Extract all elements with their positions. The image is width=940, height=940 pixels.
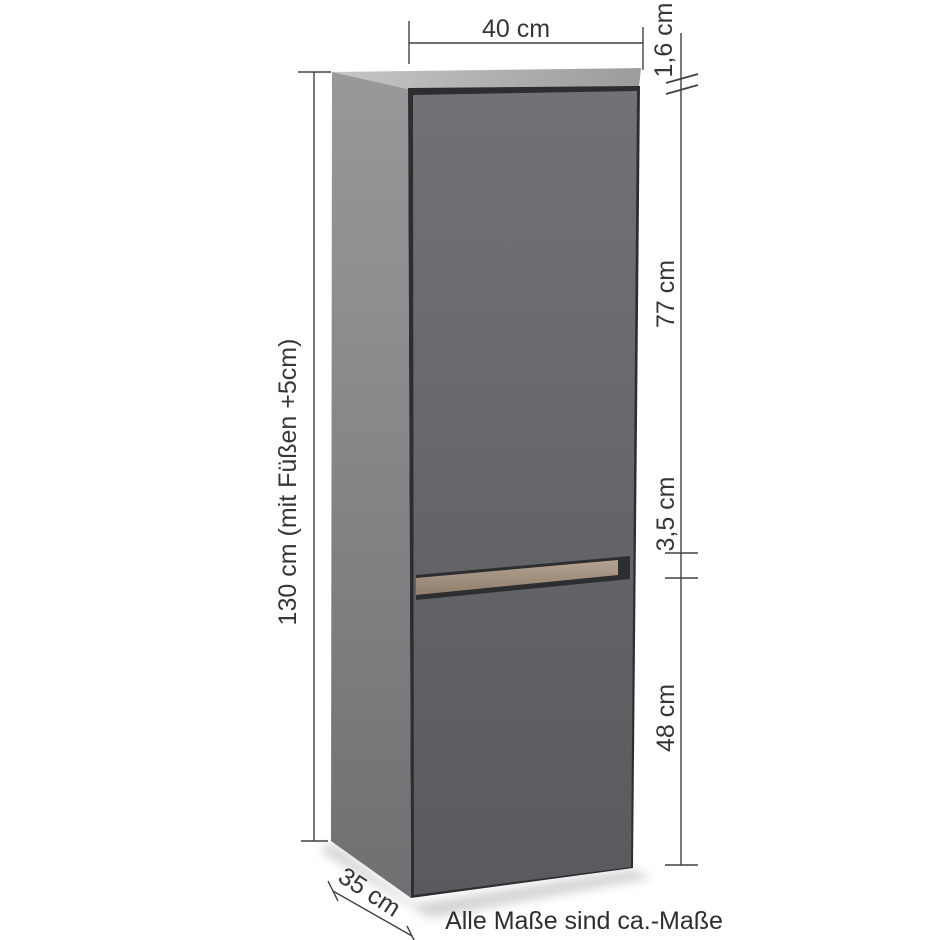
cabinet [331, 68, 641, 898]
upper-door-dimension-label: 77 cm [652, 260, 680, 328]
total-height-dimension-label: 130 cm (mit Füßen +5cm) [274, 339, 302, 626]
top-thickness-dimension-label: 1,6 cm [650, 2, 678, 77]
cabinet-side-panel [331, 72, 411, 898]
cabinet-doors [413, 91, 637, 895]
measurement-note: Alle Maße sind ca.-Maße [445, 907, 723, 935]
handle-recess-dimension-label: 3,5 cm [652, 476, 680, 551]
height-dimension-line [298, 72, 331, 841]
lower-door-dimension-label: 48 cm [652, 684, 680, 752]
cabinet-dimension-drawing: 40 cm 1,6 cm 77 cm 3,5 cm 48 cm 130 cm (… [0, 0, 940, 940]
width-dimension-label: 40 cm [482, 15, 550, 43]
dimension-diagram: 40 cm 1,6 cm 77 cm 3,5 cm 48 cm 130 cm (… [0, 0, 940, 940]
